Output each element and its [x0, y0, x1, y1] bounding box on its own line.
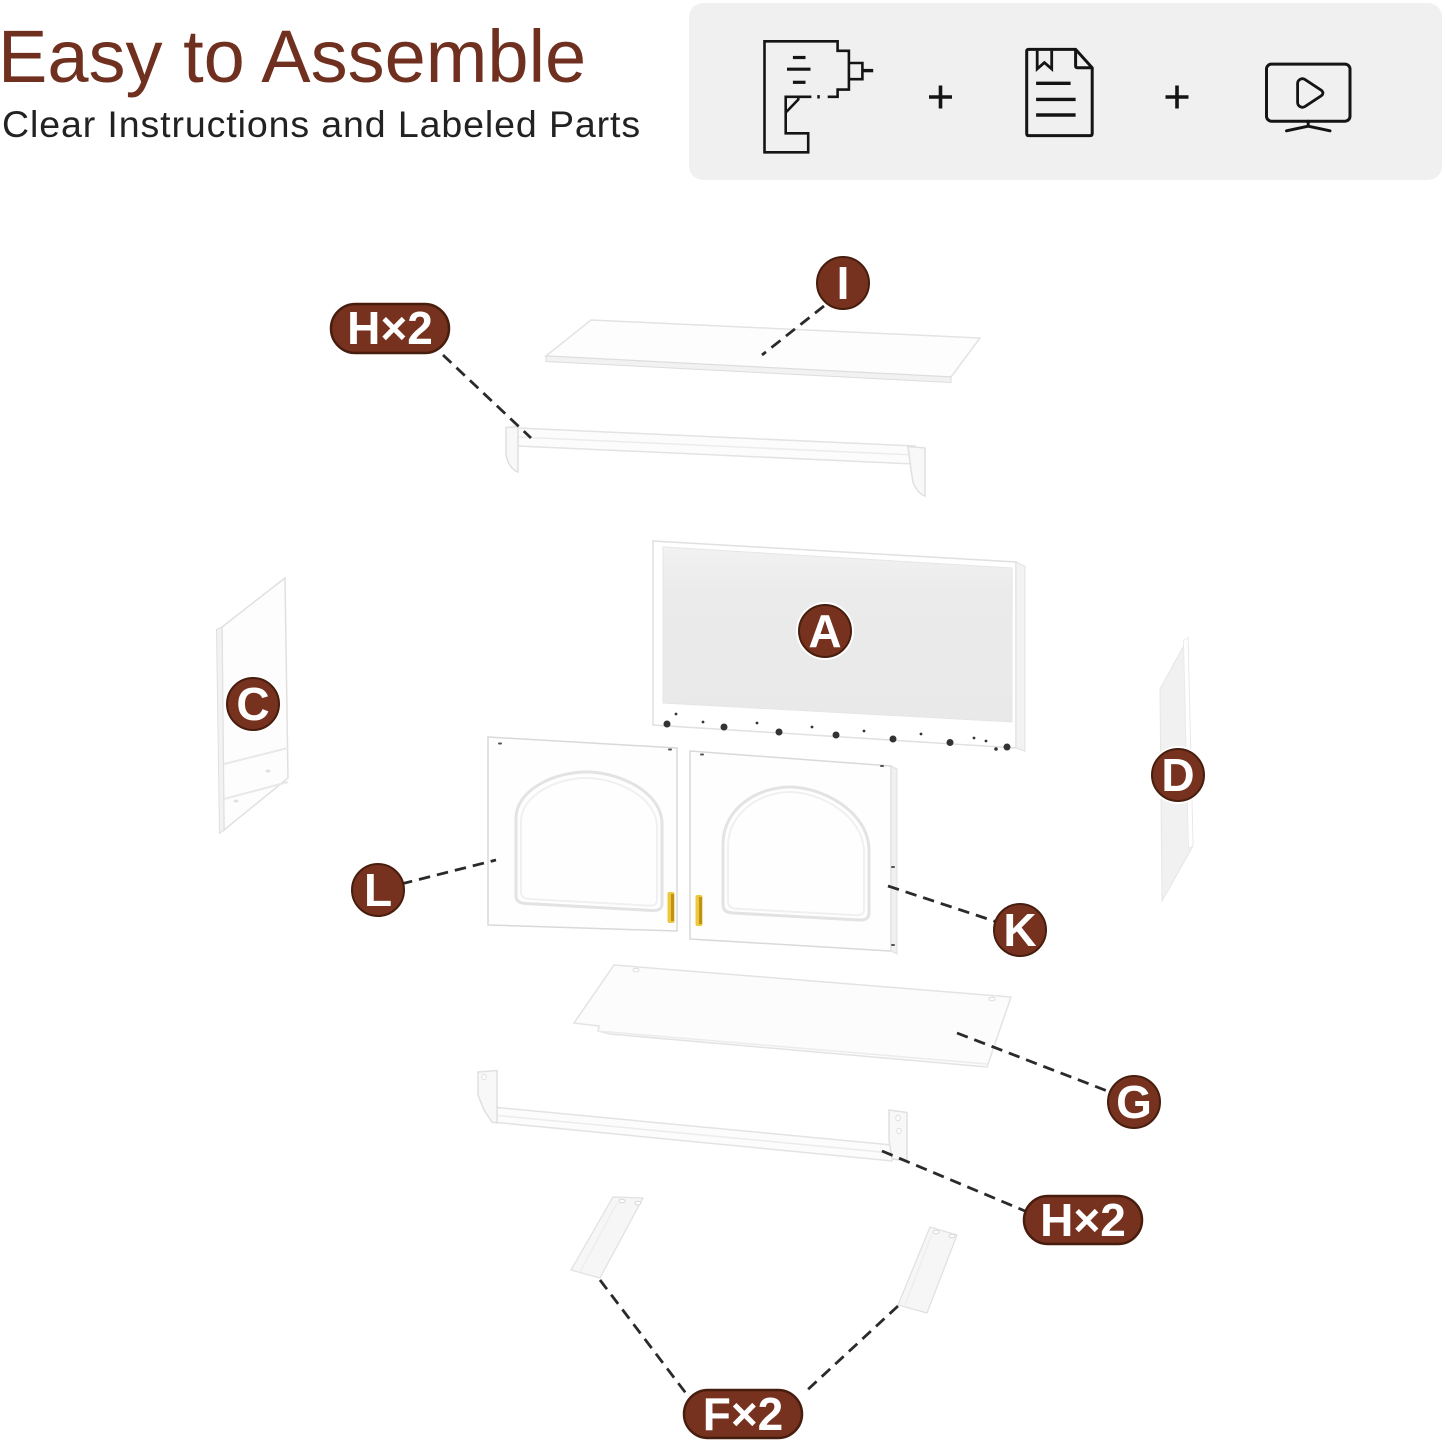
svg-text:Clear Instructions and Labeled: Clear Instructions and Labeled Parts	[2, 103, 641, 145]
svg-text:D: D	[1161, 749, 1194, 801]
svg-text:L: L	[364, 864, 392, 916]
svg-text:K: K	[1003, 904, 1036, 956]
svg-text:A: A	[808, 605, 841, 657]
svg-text:H×2: H×2	[347, 302, 433, 354]
svg-text:F×2: F×2	[703, 1388, 784, 1440]
svg-text:C: C	[236, 678, 269, 730]
svg-text:G: G	[1116, 1076, 1152, 1128]
svg-text:I: I	[837, 257, 850, 309]
svg-text:H×2: H×2	[1040, 1194, 1126, 1246]
svg-text:Easy to Assemble: Easy to Assemble	[0, 15, 586, 98]
